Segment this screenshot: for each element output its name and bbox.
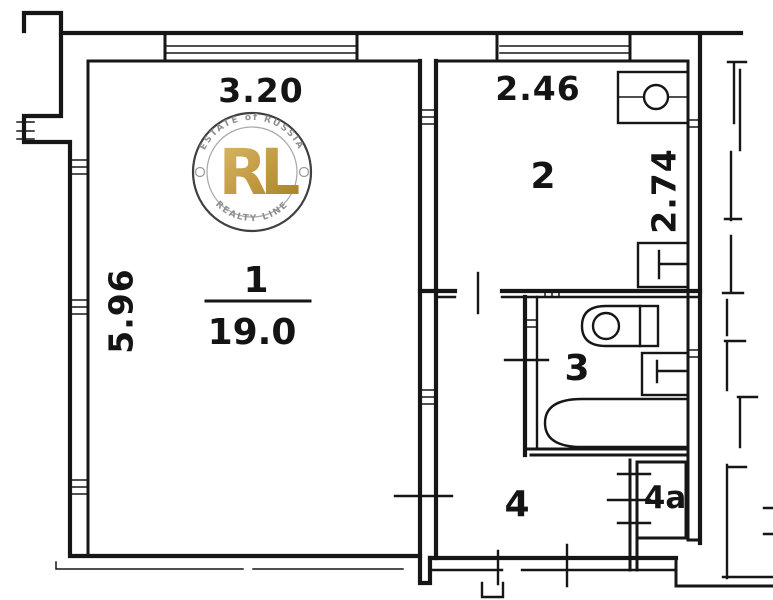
- kitchen-sink-bowl: [644, 85, 668, 109]
- room1-depth-label: 5.96: [102, 268, 141, 353]
- window-glazing-lines: [165, 46, 630, 53]
- bathtub-fixture: [545, 399, 687, 447]
- room2-number: 2: [530, 156, 555, 197]
- entrance-door-marks: [498, 545, 567, 586]
- fixtures: [545, 72, 688, 447]
- inner-wall-faces: [88, 61, 700, 556]
- room3-number: 3: [564, 348, 589, 389]
- toilet-fixture: [582, 306, 658, 346]
- bathroom-south-wall: [525, 449, 688, 455]
- neighbor-wall-fragments: [723, 62, 773, 578]
- washbasin-outline: [642, 353, 688, 395]
- room2-depth-label: 2.74: [645, 148, 684, 233]
- stove-fixture: [638, 243, 688, 287]
- door-marks: [395, 273, 650, 586]
- room2-width-label: 2.46: [495, 69, 580, 108]
- room4-number: 4: [504, 484, 529, 525]
- entrance-step: [482, 583, 503, 597]
- watermark-left-dot: [196, 168, 205, 177]
- windows: [165, 34, 630, 61]
- bottom-right-building-edge: [676, 558, 773, 586]
- watermark-logo: ESTATE of RUSSIA REALTY LINE RL: [193, 113, 311, 231]
- toilet-tank: [640, 306, 658, 346]
- neighbor-walls: [723, 62, 773, 578]
- room1-width-label: 3.20: [218, 71, 303, 110]
- party-wall-lower-line: [56, 562, 403, 569]
- toilet-bowl: [582, 306, 640, 346]
- dimension-labels: 3.20 2.46 2.74 5.96: [102, 69, 684, 354]
- room1-divider-wall: [420, 61, 436, 583]
- kitchen-sink-fixture: [618, 72, 688, 123]
- window-jambs: [165, 34, 630, 61]
- watermark-right-dot: [300, 168, 309, 177]
- room1-area: 19.0: [208, 312, 297, 353]
- toilet-bowl-opening: [593, 313, 619, 339]
- washbasin-fixture: [642, 353, 688, 395]
- bathtub-outline: [545, 399, 687, 447]
- room1-number: 1: [243, 260, 268, 301]
- stove-symbol: [659, 251, 686, 278]
- washbasin-symbol: [657, 361, 686, 382]
- room4a-number: 4a: [644, 480, 687, 516]
- watermark-monogram: RL: [219, 136, 300, 209]
- floor-plan-drawing: 3.20 2.46 2.74 5.96 1 19.0 2 3 4 4a ESTA…: [0, 0, 773, 600]
- left-step-and-left-wall: [24, 35, 420, 556]
- floor-plan-page: 3.20 2.46 2.74 5.96 1 19.0 2 3 4 4a ESTA…: [0, 0, 773, 600]
- interior-walls: [56, 61, 700, 597]
